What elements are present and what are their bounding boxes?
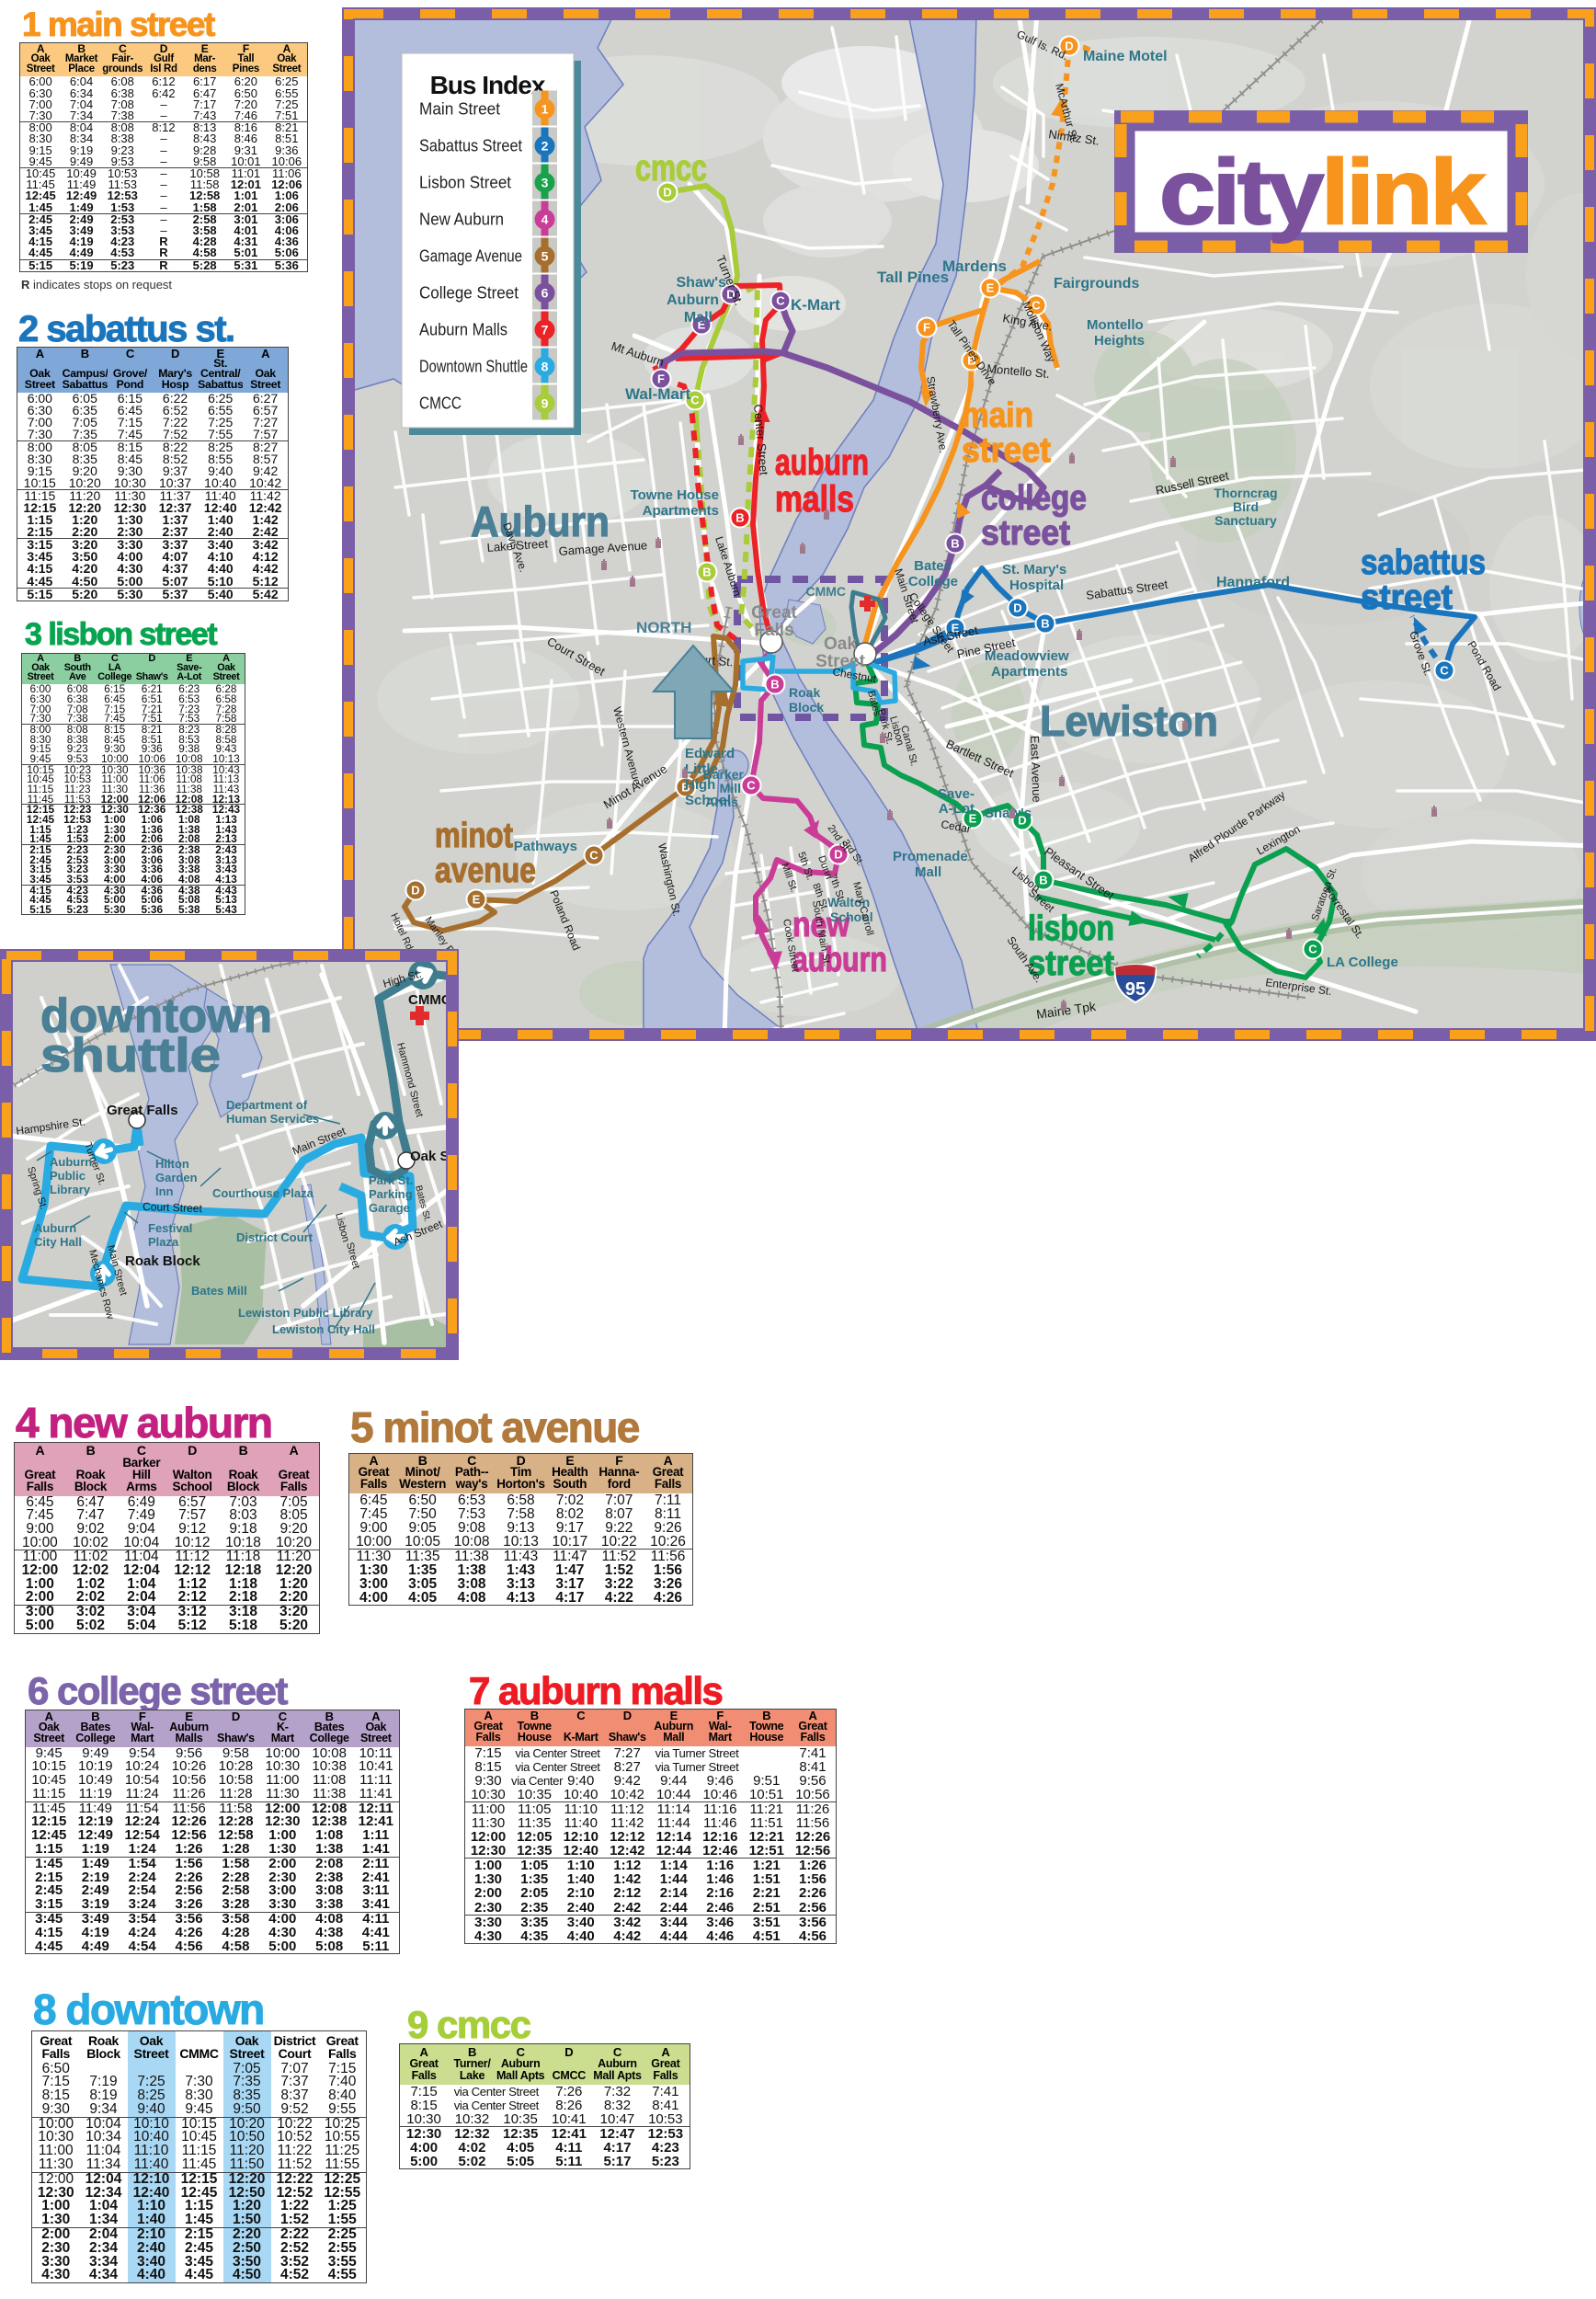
svg-text:Sanctuary: Sanctuary xyxy=(1214,513,1277,528)
svg-text:Auburn Malls: Auburn Malls xyxy=(419,321,507,339)
svg-text:Hilton: Hilton xyxy=(155,1157,189,1171)
svg-text:Park St.: Park St. xyxy=(369,1173,413,1187)
svg-text:Shaw's: Shaw's xyxy=(677,275,727,291)
svg-text:Edward: Edward xyxy=(685,746,735,761)
svg-text:C: C xyxy=(1308,943,1317,956)
svg-text:Courthouse Plaza: Courthouse Plaza xyxy=(212,1186,314,1200)
svg-text:Great Falls: Great Falls xyxy=(107,1103,178,1118)
svg-text:6: 6 xyxy=(541,286,549,301)
svg-text:main: main xyxy=(962,396,1033,435)
svg-text:Plaza: Plaza xyxy=(148,1235,179,1249)
svg-text:A-Lot: A-Lot xyxy=(939,801,975,817)
svg-text:CMMC: CMMC xyxy=(408,992,451,1008)
svg-text:Mall: Mall xyxy=(684,310,712,326)
svg-text:malls: malls xyxy=(775,479,854,520)
svg-text:Mardens: Mardens xyxy=(942,257,1007,275)
svg-text:Parking: Parking xyxy=(369,1187,413,1201)
svg-text:College Street: College Street xyxy=(419,284,519,303)
svg-text:auburn: auburn xyxy=(792,941,887,979)
svg-text:C: C xyxy=(1440,664,1449,678)
svg-text:City Hall: City Hall xyxy=(34,1235,82,1249)
svg-text:E: E xyxy=(986,281,995,295)
svg-text:C: C xyxy=(747,779,756,793)
svg-text:Hospital: Hospital xyxy=(1009,578,1064,593)
svg-text:Bates: Bates xyxy=(914,558,952,574)
svg-text:Lewiston: Lewiston xyxy=(1040,697,1218,745)
svg-text:sabattus: sabattus xyxy=(1361,543,1486,582)
svg-text:F: F xyxy=(657,372,665,386)
svg-text:St. Mary's: St. Mary's xyxy=(1002,562,1066,578)
svg-text:cmcc: cmcc xyxy=(635,148,707,189)
svg-text:Main Street: Main Street xyxy=(419,100,500,119)
svg-text:Lisbon Street: Lisbon Street xyxy=(419,174,511,192)
svg-text:Bates Mill: Bates Mill xyxy=(191,1284,247,1298)
svg-text:Wal-Mart: Wal-Mart xyxy=(625,385,690,403)
svg-text:Bird: Bird xyxy=(1233,499,1259,514)
svg-text:B: B xyxy=(702,566,711,579)
svg-text:LA College: LA College xyxy=(1327,955,1398,970)
svg-text:East Avenue: East Avenue xyxy=(1028,736,1044,803)
svg-text:Auburn: Auburn xyxy=(34,1221,76,1235)
svg-text:Oak: Oak xyxy=(824,635,857,654)
svg-text:D: D xyxy=(1013,601,1021,615)
svg-text:Montello: Montello xyxy=(1087,317,1144,333)
svg-text:citylink: citylink xyxy=(1159,141,1487,244)
svg-text:Heights: Heights xyxy=(1094,333,1145,349)
svg-text:B: B xyxy=(951,537,959,551)
svg-text:Downtown Shuttle: Downtown Shuttle xyxy=(419,358,528,376)
svg-text:street: street xyxy=(962,431,1051,470)
svg-text:Pathways: Pathways xyxy=(514,839,577,854)
svg-text:Roak Block: Roak Block xyxy=(125,1253,200,1269)
svg-text:shuttle: shuttle xyxy=(40,1029,221,1082)
svg-text:Gamage Avenue: Gamage Avenue xyxy=(419,247,522,266)
svg-text:Human Services: Human Services xyxy=(226,1112,319,1126)
svg-text:Falls: Falls xyxy=(754,621,793,640)
svg-text:Department of: Department of xyxy=(226,1098,308,1112)
svg-text:B: B xyxy=(770,678,779,692)
svg-text:3: 3 xyxy=(541,176,549,190)
svg-text:minot: minot xyxy=(435,817,513,855)
svg-text:Garden: Garden xyxy=(155,1171,198,1184)
svg-text:Block: Block xyxy=(789,700,824,715)
svg-text:Roak: Roak xyxy=(789,685,820,700)
svg-text:F: F xyxy=(923,321,930,335)
svg-text:Court Street: Court Street xyxy=(142,1200,203,1215)
svg-text:street: street xyxy=(981,514,1070,553)
svg-text:Sabattus Street: Sabattus Street xyxy=(419,137,522,155)
svg-text:K-Mart: K-Mart xyxy=(791,296,840,314)
svg-text:Public: Public xyxy=(50,1169,85,1183)
svg-text:Auburn: Auburn xyxy=(50,1155,92,1169)
svg-text:Lewiston Public Library: Lewiston Public Library xyxy=(238,1306,373,1320)
svg-text:Library: Library xyxy=(50,1183,91,1196)
svg-text:2: 2 xyxy=(541,139,549,154)
svg-text:Mill: Mill xyxy=(720,781,741,795)
svg-text:4: 4 xyxy=(541,212,549,227)
svg-text:B: B xyxy=(735,511,744,525)
svg-text:Lewiston City Hall: Lewiston City Hall xyxy=(272,1322,375,1336)
svg-text:Festival: Festival xyxy=(148,1221,192,1235)
svg-text:Thorncrag: Thorncrag xyxy=(1214,486,1277,500)
svg-text:Apartments: Apartments xyxy=(991,664,1067,680)
svg-text:Promenade: Promenade xyxy=(893,849,968,864)
svg-text:Garage: Garage xyxy=(369,1201,410,1215)
svg-text:Great: Great xyxy=(751,603,797,623)
svg-text:9: 9 xyxy=(541,396,549,411)
svg-text:Arms: Arms xyxy=(705,795,738,809)
svg-text:college: college xyxy=(981,479,1087,518)
svg-text:Maine Motel: Maine Motel xyxy=(1083,49,1168,64)
svg-text:lisbon: lisbon xyxy=(1028,909,1114,948)
svg-text:Bus Index: Bus Index xyxy=(430,71,546,99)
svg-text:Fairgrounds: Fairgrounds xyxy=(1054,276,1139,292)
svg-text:CMMC: CMMC xyxy=(805,584,846,599)
svg-text:Save-: Save- xyxy=(938,786,975,802)
svg-text:95: 95 xyxy=(1125,979,1146,1000)
svg-text:E: E xyxy=(473,893,481,907)
svg-text:Towne House: Towne House xyxy=(631,487,719,503)
svg-text:1: 1 xyxy=(541,102,549,117)
svg-text:College: College xyxy=(908,574,958,589)
svg-text:Shaw's: Shaw's xyxy=(985,806,1032,821)
svg-text:auburn: auburn xyxy=(775,442,869,483)
svg-text:Apartments: Apartments xyxy=(643,503,719,519)
svg-text:Auburn: Auburn xyxy=(667,292,719,308)
svg-text:New Auburn: New Auburn xyxy=(419,211,504,229)
svg-text:C: C xyxy=(589,849,598,863)
svg-text:C: C xyxy=(690,394,700,407)
svg-text:NORTH: NORTH xyxy=(636,619,691,636)
svg-text:7: 7 xyxy=(541,323,549,337)
svg-text:Barker: Barker xyxy=(703,767,745,782)
svg-text:8: 8 xyxy=(541,360,549,374)
svg-text:District Court: District Court xyxy=(236,1230,313,1244)
svg-text:Mall: Mall xyxy=(915,864,941,880)
svg-text:D: D xyxy=(411,884,419,898)
svg-text:Tall Pines: Tall Pines xyxy=(877,269,949,286)
svg-text:CMCC: CMCC xyxy=(419,395,462,413)
svg-text:5: 5 xyxy=(541,249,549,264)
svg-text:avenue: avenue xyxy=(435,852,536,890)
svg-text:street: street xyxy=(1361,578,1453,617)
svg-text:C: C xyxy=(776,294,785,308)
svg-text:B: B xyxy=(1041,617,1049,631)
svg-text:Hannaford: Hannaford xyxy=(1216,575,1290,590)
svg-text:Inn: Inn xyxy=(155,1184,174,1198)
